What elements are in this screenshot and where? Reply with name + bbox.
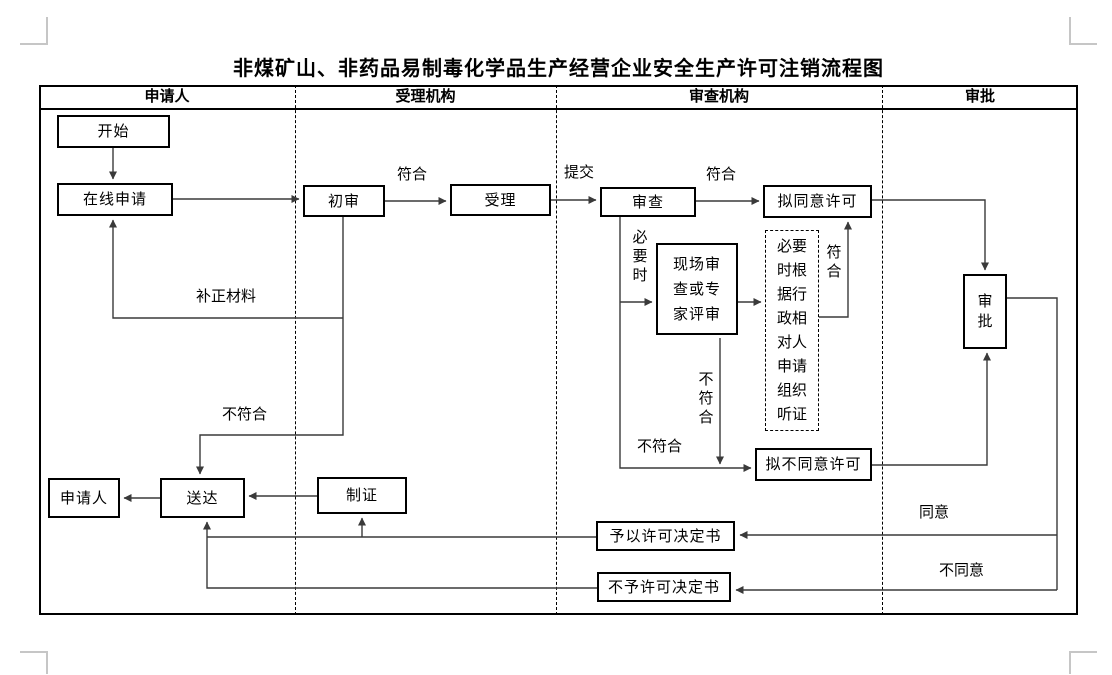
page-corner-mark-bottom-right <box>1069 651 1097 674</box>
node-start: 开始 <box>57 115 170 148</box>
lane-header-approval: 审批 <box>882 87 1078 107</box>
edge-label-fail-preliminary: 不符合 <box>222 406 267 423</box>
edge-label-pass-hearing: 符合 <box>826 243 842 281</box>
page-corner-mark-bottom-left <box>20 651 48 674</box>
edge-label-pass-preliminary: 符合 <box>397 166 427 183</box>
page-title: 非煤矿山、非药品易制毒化学品生产经营企业安全生产许可注销流程图 <box>39 52 1078 81</box>
node-grant-decision: 予以许可决定书 <box>596 521 735 551</box>
lane-header-accepting-body: 受理机构 <box>295 87 556 107</box>
node-applicant: 申请人 <box>48 478 120 518</box>
edge-label-when-necessary: 必要时 <box>632 228 648 285</box>
lane-divider-1 <box>295 85 296 615</box>
lane-divider-3 <box>882 85 883 615</box>
node-online-apply: 在线申请 <box>57 183 173 216</box>
edge-label-fail-onsite: 不符合 <box>698 370 714 427</box>
header-separator-line <box>39 108 1078 110</box>
edge-label-agree: 同意 <box>919 504 949 521</box>
flowchart-page: 非煤矿山、非药品易制毒化学品生产经营企业安全生产许可注销流程图 申请人 受理机构… <box>0 0 1112 675</box>
node-propose-approve: 拟同意许可 <box>763 185 872 218</box>
node-review: 审查 <box>600 187 696 217</box>
node-preliminary-review: 初审 <box>303 185 385 217</box>
edge-label-fail-review: 不符合 <box>637 438 682 455</box>
page-corner-mark-top-right <box>1069 17 1097 45</box>
node-make-certificate: 制证 <box>317 477 407 514</box>
edge-label-pass-review: 符合 <box>706 166 736 183</box>
node-onsite-review: 现场审查或专家评审 <box>656 243 738 335</box>
node-deny-decision: 不予许可决定书 <box>597 572 731 602</box>
flowchart-frame <box>39 85 1078 615</box>
node-approve: 审批 <box>963 274 1007 349</box>
edge-label-supplement-materials: 补正材料 <box>196 288 256 305</box>
page-corner-mark-top-left <box>20 17 48 45</box>
lane-divider-2 <box>556 85 557 615</box>
edge-label-submit: 提交 <box>564 164 594 181</box>
lane-header-applicant: 申请人 <box>39 87 295 107</box>
lane-header-review-body: 审查机构 <box>556 87 882 107</box>
node-accept: 受理 <box>450 184 551 216</box>
edge-label-disagree: 不同意 <box>939 562 984 579</box>
node-hearing: 必要时根据行政相对人申请组织听证 <box>765 230 819 431</box>
node-propose-deny: 拟不同意许可 <box>755 448 872 481</box>
node-deliver: 送达 <box>160 478 245 518</box>
